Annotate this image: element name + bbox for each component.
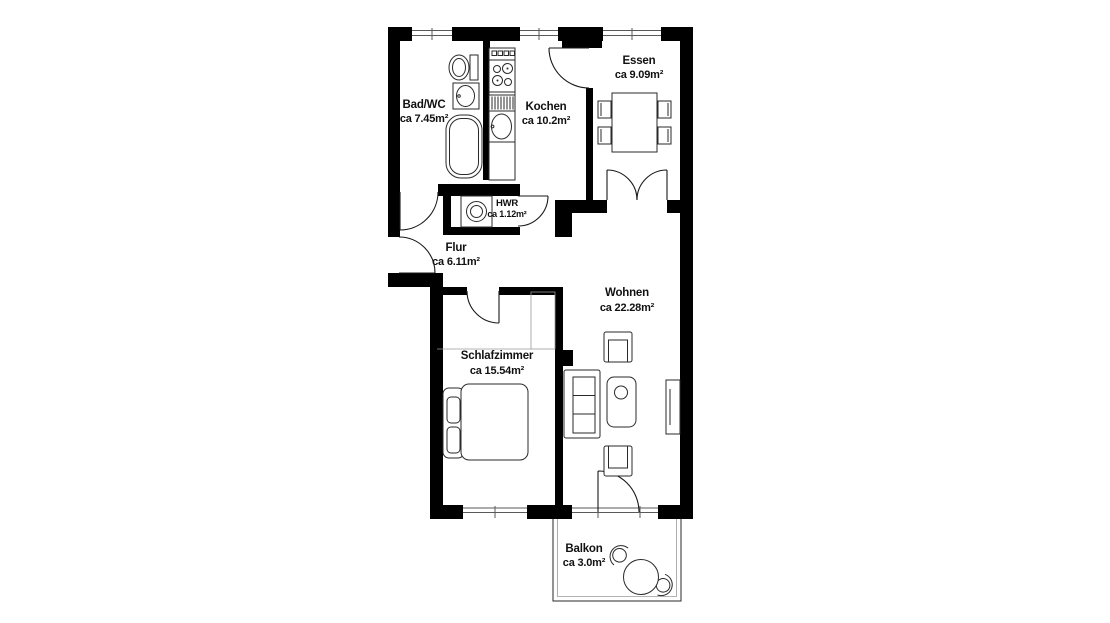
bathroom-sink [453, 83, 479, 109]
room-label-kochen: Kochen ca 10.2m² [522, 101, 571, 127]
balcony-chair-left [606, 541, 632, 568]
room-label-essen: Essen ca 9.09m² [615, 55, 664, 81]
room-name-hwr: HWR [496, 198, 518, 209]
room-area-kochen: ca 10.2m² [522, 115, 571, 127]
armchair-bottom [604, 446, 632, 476]
floorplan-page: Bad/WC ca 7.45m² Kochen ca 10.2m² Essen … [0, 0, 1110, 623]
bed [443, 384, 528, 460]
dining-french-door-left [607, 170, 637, 200]
room-label-hwr: HWR ca 1.12m² [487, 198, 526, 219]
entrance-door [399, 237, 435, 273]
room-label-bad: Bad/WC ca 7.45m² [400, 99, 449, 125]
balcony-door [598, 471, 639, 512]
floorplan-svg: Bad/WC ca 7.45m² Kochen ca 10.2m² Essen … [0, 0, 1110, 623]
armchair-top [604, 332, 632, 362]
wardrobe [437, 292, 555, 349]
dining-table [612, 93, 657, 152]
room-name-wohnen: Wohnen [605, 287, 649, 299]
bathtub [446, 115, 482, 178]
dining-french-door-right [637, 170, 667, 200]
room-area-hwr: ca 1.12m² [487, 209, 526, 219]
room-label-schlafzimmer: Schlafzimmer ca 15.54m² [461, 350, 534, 377]
room-area-balkon: ca 3.0m² [563, 557, 606, 569]
coffee-table [607, 377, 636, 427]
room-name-essen: Essen [623, 55, 656, 67]
room-name-bad: Bad/WC [403, 99, 446, 111]
bath-door [400, 192, 438, 230]
toilet [449, 55, 478, 80]
room-area-bad: ca 7.45m² [400, 113, 449, 125]
sofa [564, 370, 600, 438]
room-name-kochen: Kochen [526, 101, 567, 113]
room-area-wohnen: ca 22.28m² [600, 302, 655, 314]
room-label-wohnen: Wohnen ca 22.28m² [600, 287, 655, 314]
room-area-essen: ca 9.09m² [615, 69, 664, 81]
room-area-schlafzimmer: ca 15.54m² [470, 365, 525, 377]
room-area-flur: ca 6.11m² [432, 256, 480, 268]
room-name-schlafzimmer: Schlafzimmer [461, 350, 534, 362]
room-name-flur: Flur [446, 242, 468, 254]
bedroom-door [467, 291, 499, 323]
room-label-balkon: Balkon ca 3.0m² [563, 543, 606, 569]
room-label-flur: Flur ca 6.11m² [432, 242, 480, 268]
kitchen-door [549, 48, 589, 88]
room-name-balkon: Balkon [565, 543, 602, 555]
sideboard [666, 380, 680, 434]
balcony-table [624, 560, 659, 595]
